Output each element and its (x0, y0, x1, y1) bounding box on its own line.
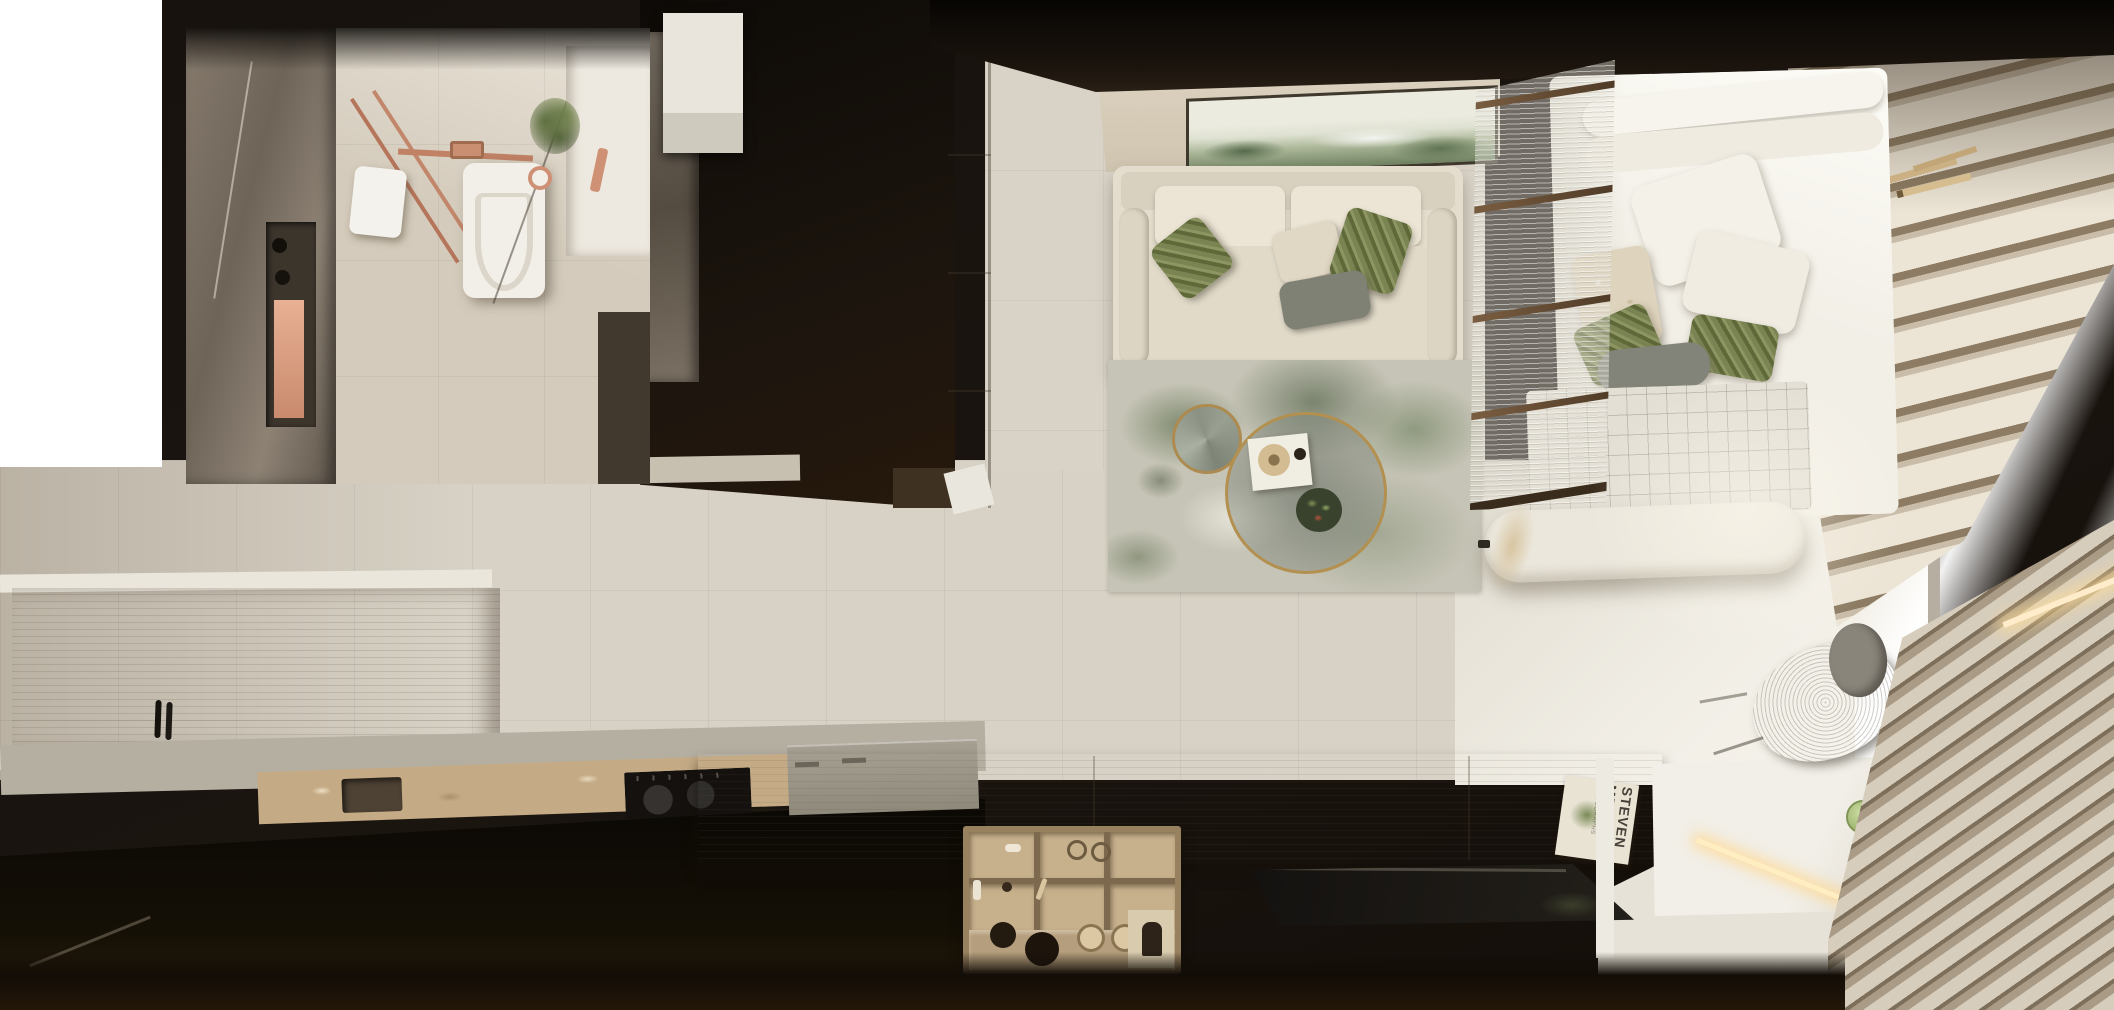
shower-control-knob (275, 270, 290, 285)
desk-side-panel (1596, 758, 1614, 958)
wall-cabinet-white (663, 13, 743, 153)
small-item (1005, 844, 1021, 852)
small-item (1002, 882, 1012, 892)
tv-edge-glint (1256, 867, 1566, 872)
shower-dark-marble-floor (598, 312, 650, 484)
plant-bowl (1296, 488, 1342, 532)
shower-control-knob (272, 238, 287, 253)
organizer-cell (969, 832, 1034, 878)
niche-copper-shelf (274, 300, 304, 418)
cosmetic-jar (990, 922, 1016, 948)
bronze-rail (1466, 184, 1617, 215)
wardrobe-column (948, 38, 991, 508)
abstract-landscape-artwork (1186, 85, 1498, 177)
tv-screen (1252, 864, 1634, 926)
render-canvas-cutout (0, 0, 162, 467)
bathroom-plant (530, 98, 580, 154)
wall-hook (1478, 540, 1490, 548)
sofa-armrest (1427, 208, 1457, 366)
black-cup (1294, 448, 1306, 460)
apartment-top-view-render: PHOTOGRAPHS STEVEN MEISEL (0, 0, 2114, 1010)
straw-hat-decor (1258, 444, 1290, 476)
ring-item (1091, 842, 1111, 862)
ring-item (1067, 840, 1087, 860)
wood-cup (1077, 924, 1105, 952)
tv-plant-reflection (1540, 892, 1604, 918)
bottom-wall-shadow (0, 952, 1845, 1010)
towel (349, 165, 408, 238)
sofa (1113, 166, 1463, 376)
tube-item (973, 880, 981, 900)
sideboard-seam (1468, 756, 1470, 860)
bathroom-top-shadow (186, 28, 650, 70)
copper-floor-drain (450, 141, 484, 159)
organizer-cell (1110, 832, 1175, 878)
kitchen-oak-cabinet (12, 588, 500, 752)
door-threshold (628, 455, 800, 484)
organizer-cell (1040, 884, 1105, 930)
toilet-paper-holder (528, 166, 552, 190)
kitchen-sink (341, 777, 402, 813)
box-figure-print (1142, 922, 1162, 956)
sofa-armrest (1119, 208, 1149, 366)
